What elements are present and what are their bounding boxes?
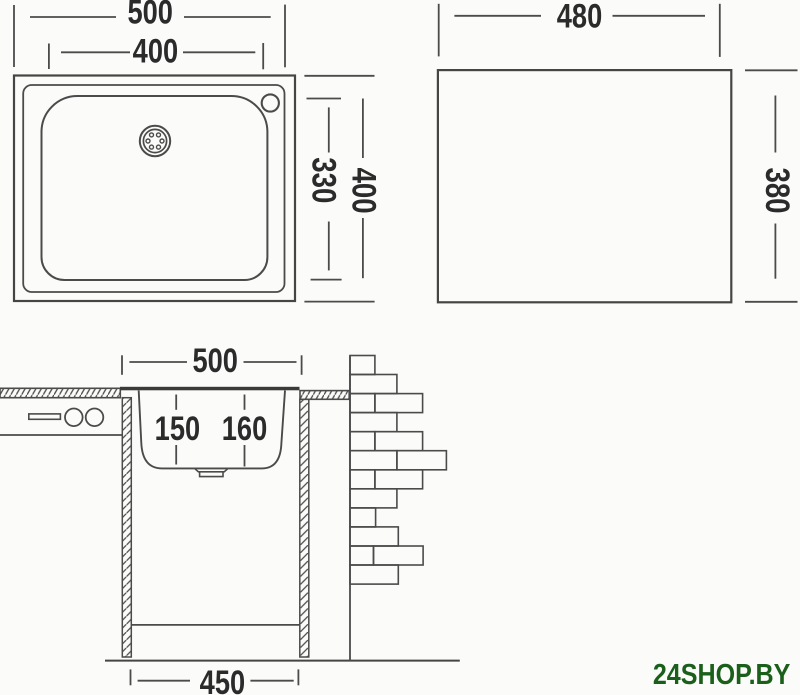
svg-text:500: 500 xyxy=(192,341,237,380)
svg-text:450: 450 xyxy=(200,663,245,695)
svg-text:380: 380 xyxy=(758,167,797,213)
svg-text:400: 400 xyxy=(345,168,384,214)
svg-text:480: 480 xyxy=(557,0,602,35)
svg-text:330: 330 xyxy=(305,157,344,203)
svg-text:400: 400 xyxy=(133,31,178,70)
svg-text:150: 150 xyxy=(155,409,200,448)
svg-text:500: 500 xyxy=(127,0,172,31)
svg-text:24SHOP.BY: 24SHOP.BY xyxy=(653,657,791,690)
svg-text:160: 160 xyxy=(222,409,267,448)
